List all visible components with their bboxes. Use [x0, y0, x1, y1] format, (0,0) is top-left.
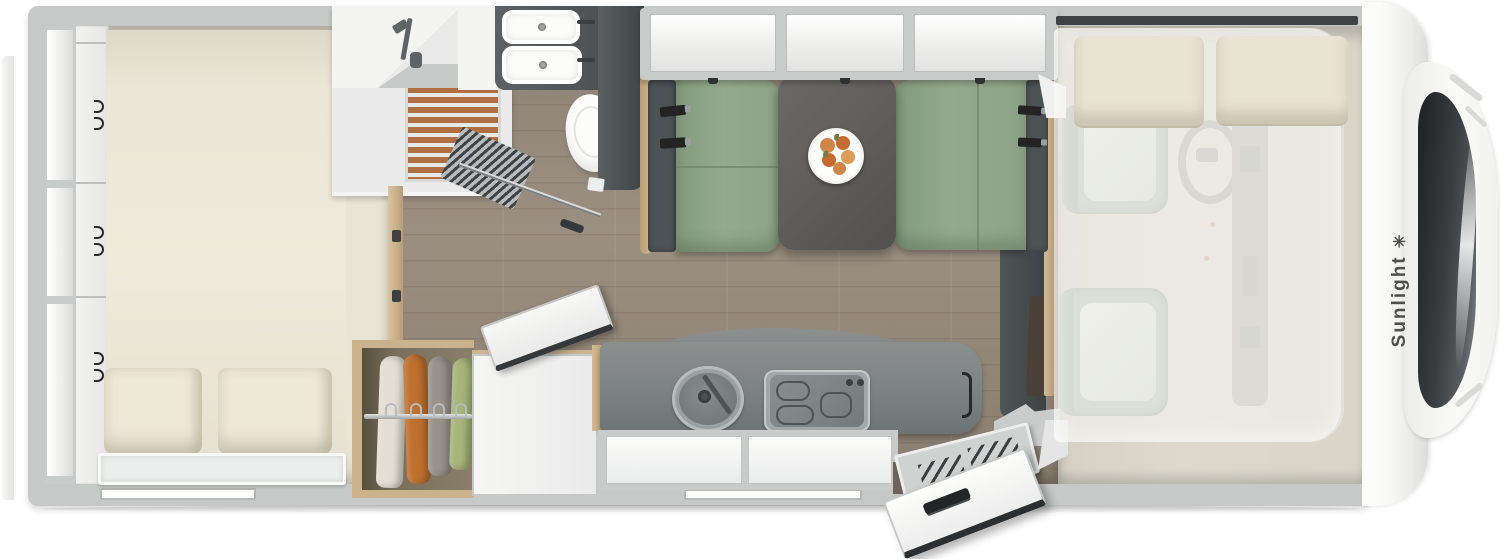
cabinet-foot — [587, 177, 605, 192]
drop-bed-pillow — [1074, 36, 1204, 128]
towel-rail-icon — [962, 372, 972, 418]
seatbelt-buckle-icon — [1018, 105, 1043, 116]
hanger-hook-icon — [410, 403, 422, 416]
seatbelt-buckle-icon — [1018, 138, 1042, 148]
locker-cell — [914, 14, 1046, 72]
kitchen-cabinet-fronts — [598, 430, 898, 490]
windshield-header — [1056, 16, 1358, 25]
burner-icon — [776, 381, 810, 401]
hanger-hook-icon — [433, 403, 445, 416]
locker-cell — [786, 14, 904, 72]
trim-streak — [1448, 72, 1484, 102]
faucet-icon — [577, 58, 595, 62]
door-seam — [76, 42, 109, 44]
drawer-front — [748, 436, 892, 484]
seatbelt-buckle-icon — [660, 137, 686, 148]
shower-mixer-icon — [410, 52, 422, 68]
kitchen-sink — [672, 366, 744, 432]
bed-side-ledge — [98, 453, 346, 485]
shelf-cell — [47, 188, 73, 296]
stove-knob-icon — [846, 379, 853, 386]
burner-icon — [820, 392, 852, 418]
drop-bed-pillow — [1216, 36, 1348, 126]
locker-latch-icon — [975, 78, 985, 84]
sink-basin — [502, 46, 582, 84]
bed-pillow — [218, 368, 332, 454]
overhead-lockers — [640, 8, 1058, 80]
door-hinge-icon — [392, 290, 401, 302]
shelf-cell — [47, 304, 73, 476]
window-bottom-bedroom — [100, 488, 256, 500]
locker-cell — [650, 14, 776, 72]
rear-bumper — [2, 56, 14, 500]
top-loading-compartment — [472, 350, 598, 496]
faucet-icon — [577, 20, 595, 24]
bathroom-wall — [458, 6, 498, 90]
hanger-hook-icon — [385, 403, 397, 416]
stove — [764, 370, 870, 432]
brand-badge: Sunlight ✳ — [1385, 181, 1415, 401]
vanity-counter — [495, 6, 607, 90]
brand-logo-icon: ✳ — [1392, 235, 1409, 248]
door-seam — [76, 296, 109, 298]
cabinet-handle-icon — [94, 100, 105, 134]
shelf-cell — [47, 30, 73, 180]
sink-drain — [698, 390, 711, 403]
door-handle-icon — [922, 487, 971, 514]
vehicle-shadow — [40, 505, 1360, 513]
bench-right-cushion — [894, 80, 1026, 250]
fruit-plate — [808, 128, 864, 184]
bench-left-cushion — [676, 80, 780, 252]
locker-latch-icon — [708, 78, 718, 84]
brand-name: Sunlight — [1389, 255, 1410, 347]
cabinet-handle-icon — [94, 226, 105, 260]
floorplan-canvas: Sunlight ✳ — [0, 0, 1500, 555]
rear-shelf-column — [44, 26, 76, 484]
burner-icon — [776, 405, 814, 425]
door-hinge-icon — [392, 230, 401, 242]
door-seam — [76, 182, 109, 184]
windshield — [1404, 62, 1498, 438]
stove-knob-icon — [857, 379, 864, 386]
locker-latch-icon — [840, 78, 850, 84]
bedroom-partition-door — [388, 186, 403, 348]
garment-orange — [403, 354, 432, 485]
window-bottom-kitchen — [684, 489, 862, 500]
sink-basin — [502, 10, 580, 44]
drawer-front — [606, 436, 742, 484]
bed-pillow — [104, 368, 202, 454]
bathroom-tall-cabinet — [598, 6, 644, 190]
hanger-hook-icon — [455, 403, 467, 416]
